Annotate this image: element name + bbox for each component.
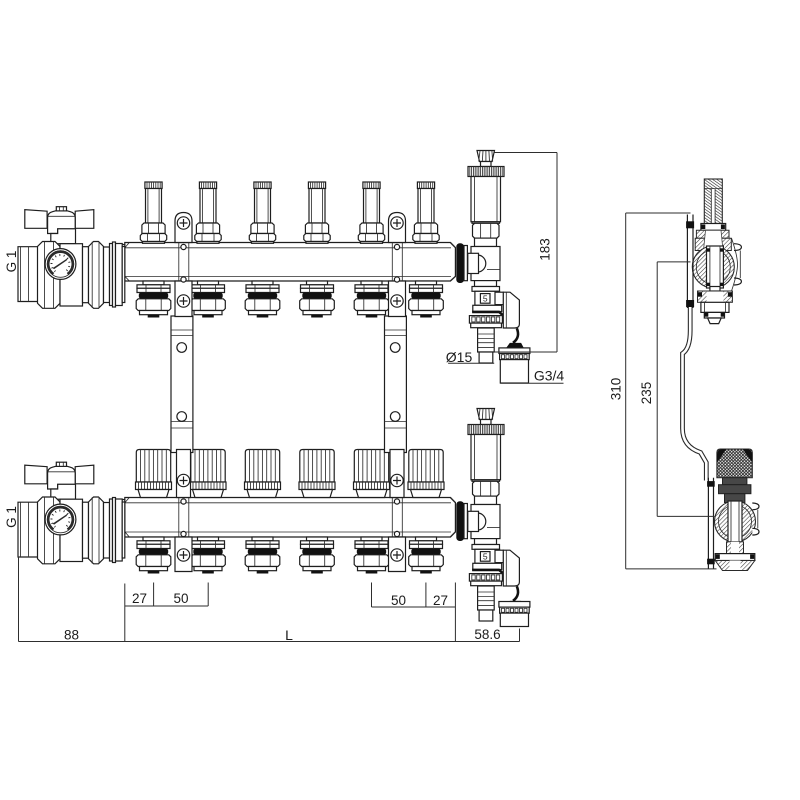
svg-text:183: 183 (538, 238, 553, 261)
svg-text:310: 310 (609, 378, 624, 401)
svg-text:88: 88 (64, 628, 79, 643)
svg-text:58.6: 58.6 (474, 627, 500, 642)
svg-text:G 1: G 1 (4, 251, 19, 273)
svg-text:50: 50 (391, 593, 406, 608)
svg-text:Ø15: Ø15 (446, 349, 473, 365)
svg-text:27: 27 (132, 591, 147, 606)
svg-text:50: 50 (173, 591, 188, 606)
svg-text:27: 27 (433, 593, 448, 608)
svg-text:G3/4: G3/4 (534, 368, 565, 384)
svg-text:235: 235 (639, 382, 654, 405)
svg-text:L: L (285, 627, 293, 643)
svg-text:G 1: G 1 (4, 506, 19, 528)
